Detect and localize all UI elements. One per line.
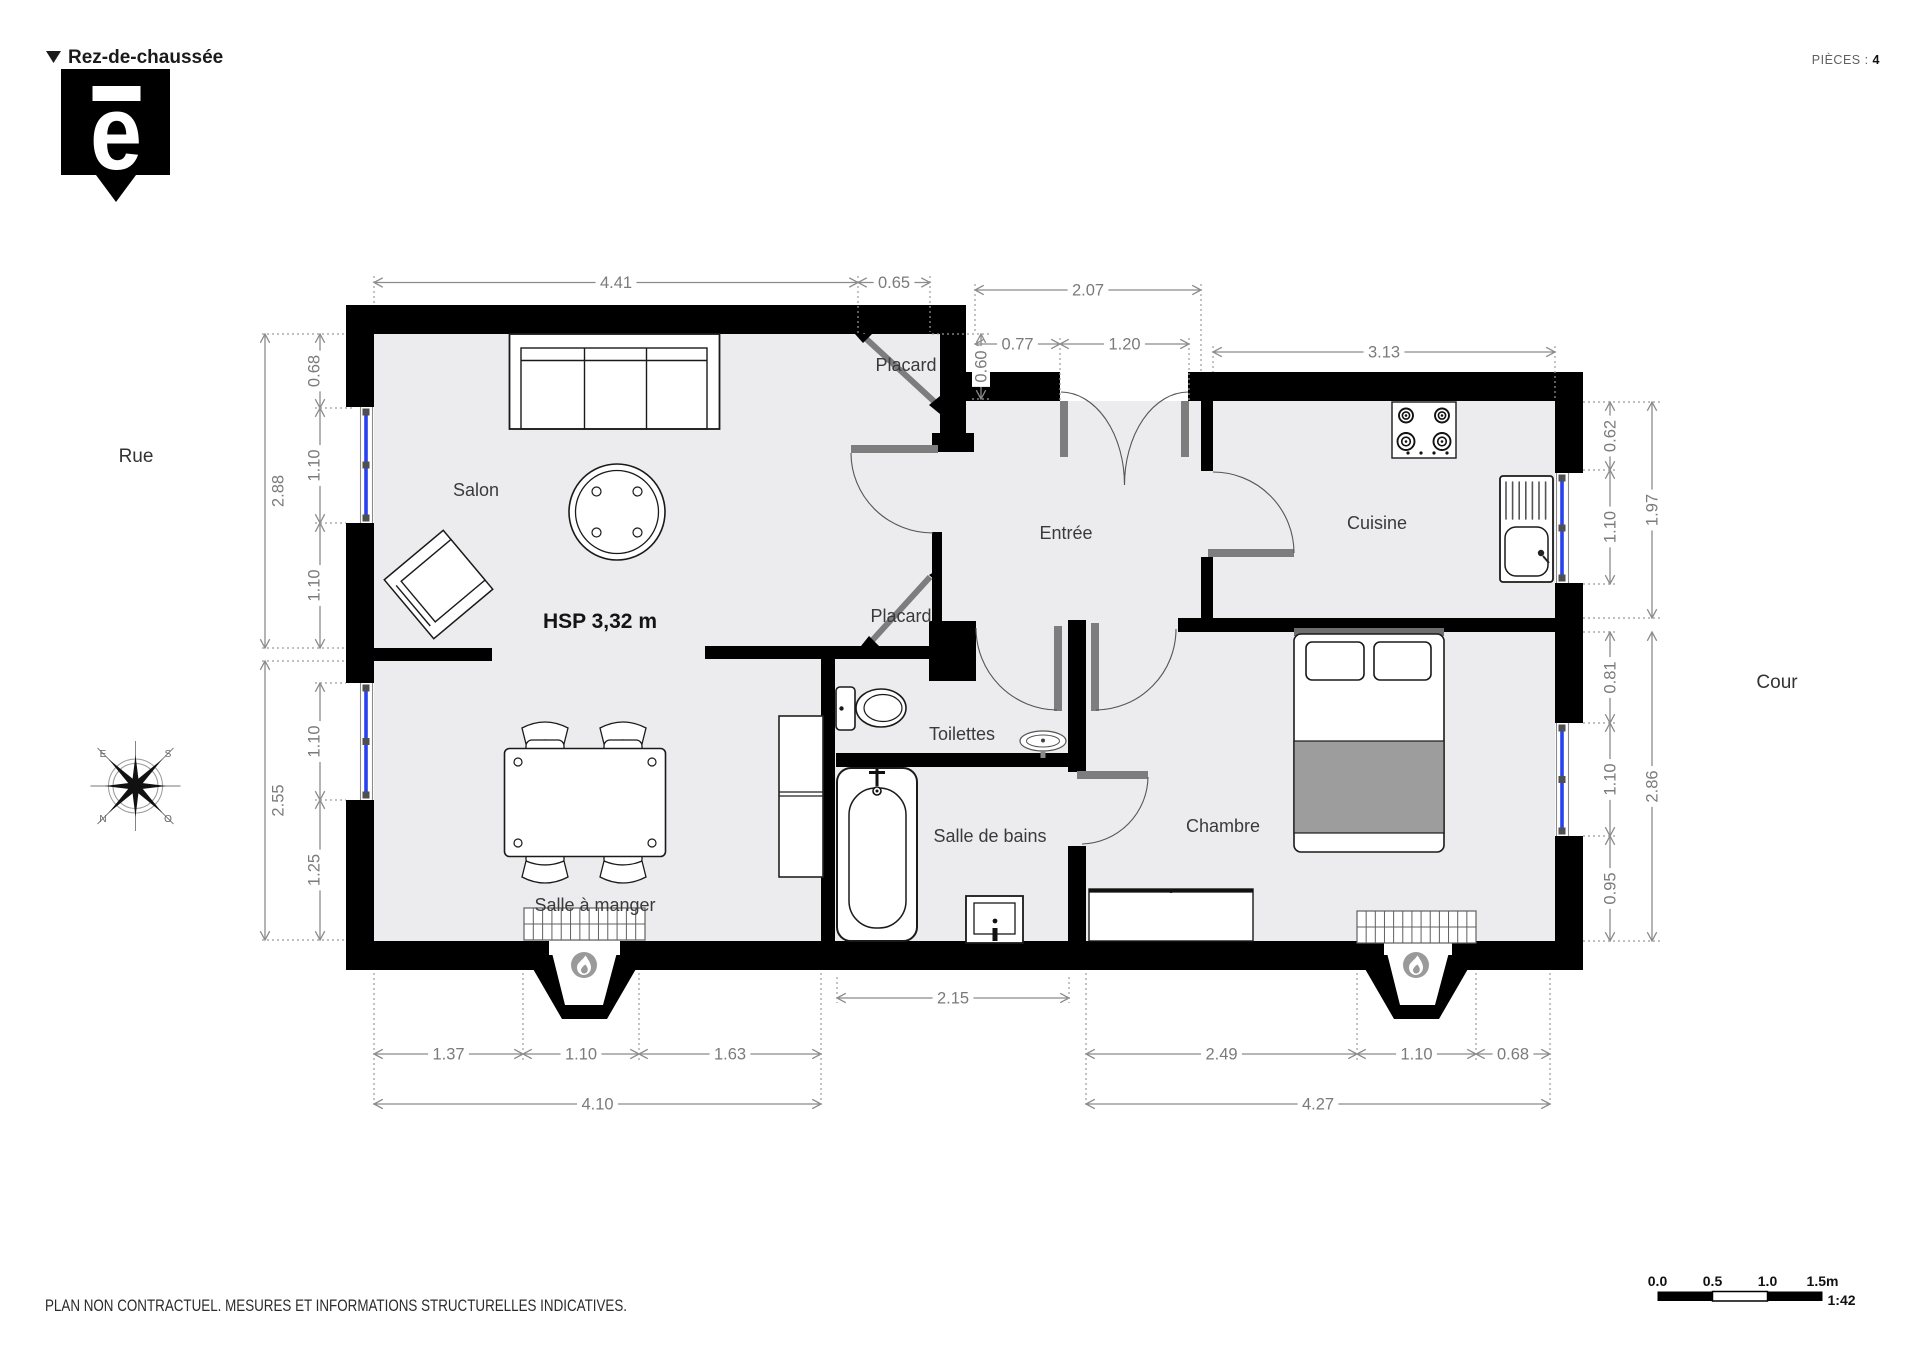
svg-text:0.77: 0.77: [1001, 336, 1033, 354]
svg-text:1.37: 1.37: [432, 1046, 464, 1064]
svg-text:Placard: Placard: [875, 355, 936, 375]
svg-text:2.88: 2.88: [270, 475, 288, 507]
svg-text:1.97: 1.97: [1644, 494, 1662, 526]
svg-text:HSP 3,32 m: HSP 3,32 m: [543, 610, 657, 633]
svg-text:N: N: [99, 814, 106, 825]
svg-text:S: S: [165, 749, 172, 760]
svg-text:0.60: 0.60: [973, 350, 991, 382]
svg-text:2.15: 2.15: [937, 990, 969, 1008]
svg-text:1.25: 1.25: [306, 854, 324, 886]
svg-text:0.0: 0.0: [1648, 1273, 1668, 1289]
svg-text:Rez-de-chaussée: Rez-de-chaussée: [68, 47, 223, 68]
svg-text:0.95: 0.95: [1602, 872, 1620, 904]
svg-text:PIÈCES : 4: PIÈCES : 4: [1812, 52, 1880, 67]
svg-text:2.49: 2.49: [1205, 1046, 1237, 1064]
svg-text:3.13: 3.13: [1368, 344, 1400, 362]
svg-text:0.62: 0.62: [1602, 420, 1620, 452]
svg-text:Chambre: Chambre: [1186, 816, 1260, 836]
svg-text:e: e: [90, 72, 142, 192]
svg-text:1.63: 1.63: [714, 1046, 746, 1064]
svg-text:Rue: Rue: [119, 446, 154, 467]
svg-text:1.0: 1.0: [1758, 1273, 1778, 1289]
svg-text:Entrée: Entrée: [1039, 523, 1092, 543]
svg-text:Salle à manger: Salle à manger: [534, 895, 655, 915]
svg-text:PLAN NON CONTRACTUEL. MESURES: PLAN NON CONTRACTUEL. MESURES ET INFORMA…: [45, 1296, 627, 1315]
svg-text:0.68: 0.68: [1497, 1046, 1529, 1064]
svg-text:2.86: 2.86: [1644, 770, 1662, 802]
svg-text:Cuisine: Cuisine: [1347, 513, 1407, 533]
svg-text:Salle de bains: Salle de bains: [933, 826, 1046, 846]
svg-text:0.5: 0.5: [1703, 1273, 1723, 1289]
svg-text:1.10: 1.10: [306, 725, 324, 757]
svg-text:1.5m: 1.5m: [1807, 1273, 1839, 1289]
svg-text:1.10: 1.10: [1602, 511, 1620, 543]
svg-text:1.10: 1.10: [306, 449, 324, 481]
svg-text:0.68: 0.68: [306, 355, 324, 387]
svg-text:E: E: [100, 749, 107, 760]
svg-text:4.10: 4.10: [581, 1096, 613, 1114]
svg-text:1.10: 1.10: [306, 569, 324, 601]
svg-text:1.10: 1.10: [565, 1046, 597, 1064]
svg-text:1.20: 1.20: [1108, 336, 1140, 354]
svg-text:4.27: 4.27: [1302, 1096, 1334, 1114]
svg-text:Cour: Cour: [1756, 672, 1798, 693]
svg-text:O: O: [164, 814, 172, 825]
svg-text:Toilettes: Toilettes: [929, 724, 995, 744]
svg-text:2.07: 2.07: [1072, 282, 1104, 300]
svg-text:1.10: 1.10: [1400, 1046, 1432, 1064]
svg-text:Placard: Placard: [870, 606, 931, 626]
svg-text:0.65: 0.65: [878, 274, 910, 292]
svg-text:2.55: 2.55: [270, 784, 288, 816]
svg-text:1:42: 1:42: [1828, 1292, 1856, 1308]
svg-text:0.81: 0.81: [1602, 661, 1620, 693]
svg-text:1.10: 1.10: [1602, 763, 1620, 795]
svg-text:Salon: Salon: [453, 480, 499, 500]
svg-text:4.41: 4.41: [600, 274, 632, 292]
